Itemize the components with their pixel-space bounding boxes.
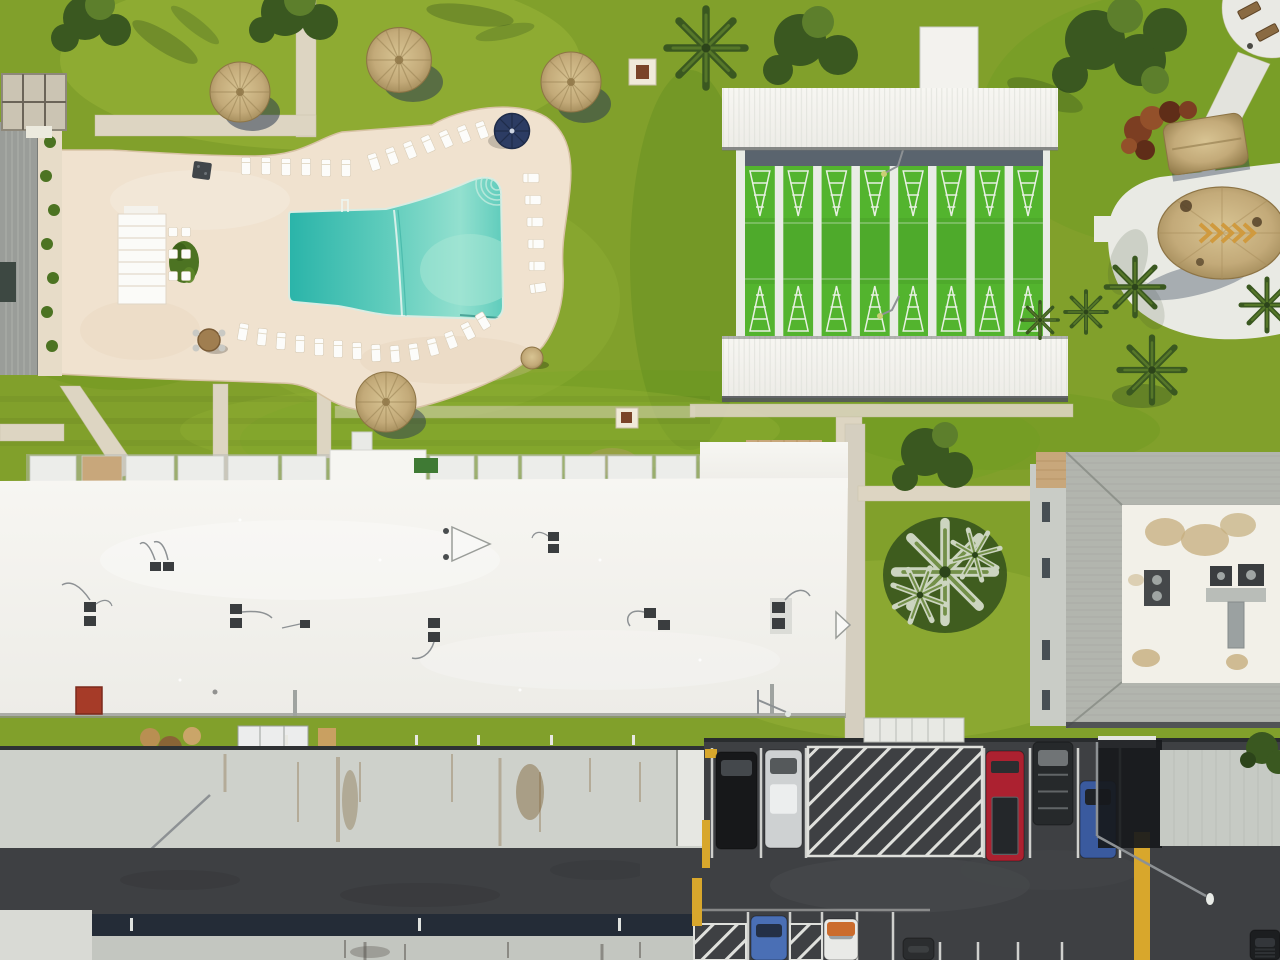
aerial-photo bbox=[0, 0, 1280, 960]
pool-lounger bbox=[257, 328, 268, 346]
court-walkway bbox=[745, 148, 1043, 166]
roof-white-end bbox=[678, 750, 706, 846]
silver-palm bbox=[883, 517, 1007, 633]
pool-lounger bbox=[334, 341, 343, 358]
pool-lounger bbox=[371, 344, 381, 361]
pool-area bbox=[58, 107, 571, 412]
second-residence-strip bbox=[0, 726, 710, 960]
equipment-box bbox=[0, 262, 16, 302]
pergola bbox=[2, 74, 66, 130]
pool-lounger bbox=[529, 282, 546, 293]
pool-lounger bbox=[342, 160, 351, 177]
shuffleboard-lane bbox=[860, 166, 890, 336]
pool-lounger bbox=[322, 160, 331, 177]
tiki-umbrella-3 bbox=[541, 52, 601, 112]
pool-lounger bbox=[169, 228, 178, 237]
entry-canopy bbox=[330, 450, 426, 483]
tiki-pavilion-rect bbox=[1162, 112, 1250, 182]
pool-lounger bbox=[352, 342, 362, 359]
pool-lounger bbox=[527, 218, 543, 227]
pool-lounger bbox=[276, 332, 286, 350]
carport-roof-strip bbox=[0, 936, 700, 960]
roof-edge-shadow bbox=[0, 746, 706, 750]
condo-right bbox=[1030, 452, 1280, 728]
pool-lounger bbox=[182, 228, 191, 237]
pool-lounger bbox=[525, 196, 541, 205]
shuffleboard-lane bbox=[822, 166, 852, 336]
tiki-umbrella-4 bbox=[356, 372, 416, 432]
pool-lounger bbox=[262, 158, 271, 175]
clubhouse-left bbox=[0, 74, 66, 376]
vehicle-white-car-orange-hood bbox=[824, 919, 858, 960]
cabana bbox=[118, 206, 166, 304]
shuffleboard-lane bbox=[937, 166, 967, 336]
vehicle-dark-suv-roof-rack bbox=[1033, 742, 1073, 825]
pool-lounger bbox=[169, 272, 178, 281]
pool-lounger bbox=[390, 345, 400, 363]
red-chimney bbox=[76, 687, 102, 714]
vehicle-blue-car-2 bbox=[751, 916, 787, 960]
tiki-umbrella-1 bbox=[210, 62, 270, 122]
pool-lounger bbox=[182, 272, 191, 281]
main-residence bbox=[0, 432, 850, 718]
vehicle-red-pickup bbox=[986, 751, 1024, 861]
vehicle-silver-car bbox=[765, 750, 802, 848]
pool-lounger bbox=[182, 250, 191, 259]
pool-lounger bbox=[523, 174, 539, 183]
pool-lounger bbox=[242, 158, 251, 175]
canopy-roof-bottom bbox=[722, 336, 1068, 402]
pool-lounger bbox=[302, 159, 311, 176]
vehicle-black-car bbox=[716, 752, 757, 849]
parking-lot bbox=[692, 718, 1280, 960]
shuffleboard-lane bbox=[783, 166, 813, 336]
vehicle-dark-car bbox=[903, 938, 934, 960]
paver-entry bbox=[1036, 452, 1070, 488]
pool-lounger bbox=[529, 262, 545, 271]
storage-sheds bbox=[864, 718, 964, 742]
grill bbox=[192, 161, 212, 180]
green-equipment-box bbox=[414, 458, 438, 473]
vehicle-dark-suv-corner bbox=[1250, 930, 1280, 960]
white-roof-corner bbox=[0, 910, 92, 960]
shuffleboard-lane bbox=[898, 166, 928, 336]
shuffleboard-lane bbox=[745, 166, 775, 336]
tiki-umbrella-2 bbox=[367, 28, 432, 93]
shuffleboard-lane bbox=[975, 166, 1005, 336]
access-road bbox=[0, 848, 710, 916]
aerial-scene bbox=[0, 0, 1280, 960]
roof-stair-tower bbox=[352, 432, 372, 452]
pool-lounger bbox=[315, 339, 324, 356]
palm-tree bbox=[667, 9, 745, 87]
pool-lounger bbox=[528, 240, 544, 249]
pool-lounger bbox=[169, 250, 178, 259]
pool-lounger bbox=[295, 335, 305, 352]
pool-lounger bbox=[282, 159, 291, 176]
